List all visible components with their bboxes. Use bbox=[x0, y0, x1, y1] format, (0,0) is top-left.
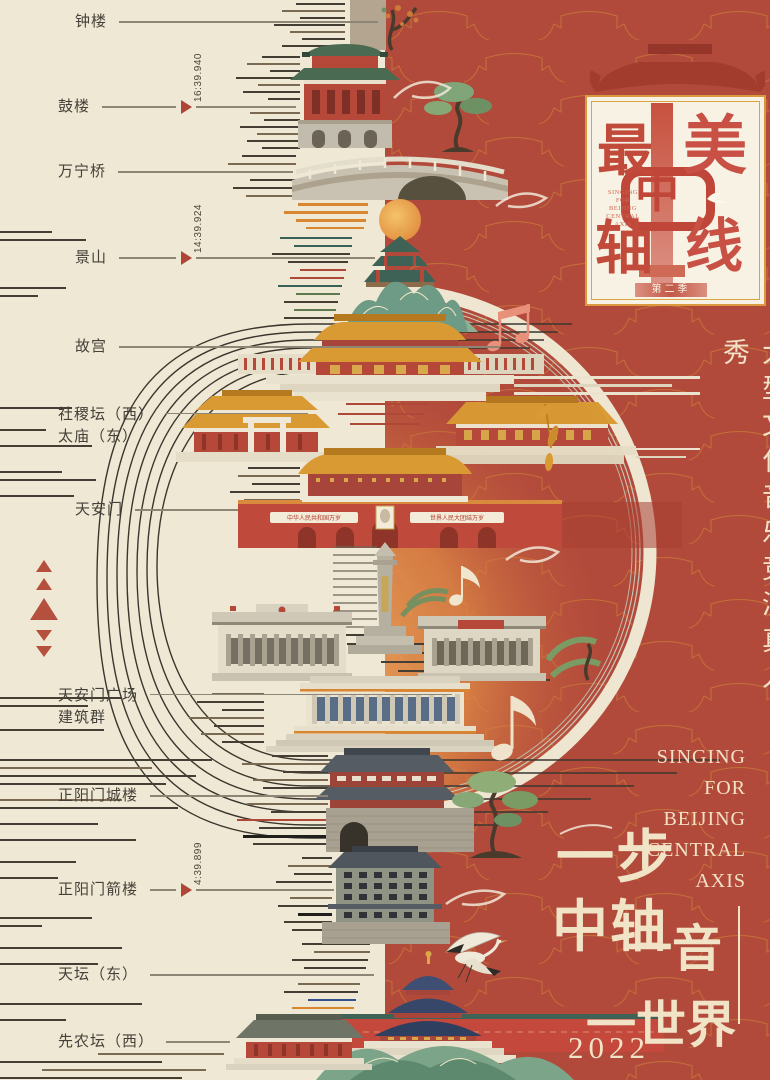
leader-line bbox=[150, 694, 452, 695]
leader-line bbox=[150, 974, 374, 975]
badge-season-banner: 第二季 bbox=[635, 283, 707, 297]
timestamp-label: 16:39.940 bbox=[193, 53, 204, 102]
landmark-label: 正阳门城楼 bbox=[58, 785, 138, 807]
landmark-label: 鼓楼 bbox=[58, 96, 90, 118]
landmark-row: 先农坛（西） bbox=[58, 1033, 230, 1051]
triangle-markers bbox=[30, 560, 58, 657]
landmark-label: 天坛（东） bbox=[58, 964, 138, 986]
tagline-part1: 一步 bbox=[556, 828, 676, 886]
landmark-label: 社稷坛（西）太庙（东） bbox=[58, 404, 154, 448]
leader-line bbox=[119, 346, 500, 347]
timestamp-label: 4:39.899 bbox=[193, 842, 204, 885]
triangle-down-icon bbox=[36, 646, 52, 657]
landmark-label: 景山 bbox=[75, 247, 107, 269]
landmark-row: 天安门广场建筑群 bbox=[58, 685, 452, 729]
landmark-row: 正阳门城楼 bbox=[58, 787, 328, 805]
leader-line bbox=[135, 509, 238, 510]
show-type-vertical-text: 大型文化音乐竞演真人秀 bbox=[714, 338, 770, 718]
landmark-row: 天坛（东） bbox=[58, 966, 374, 984]
landmark-label: 正阳门箭楼 bbox=[58, 879, 138, 901]
landmark-label: 故宫 bbox=[75, 336, 107, 358]
leader-line bbox=[118, 171, 293, 172]
badge-subtitle: SINGINGFOR BEIJINGCENTRAL AXIS bbox=[603, 189, 643, 229]
swallow-icon bbox=[705, 189, 727, 205]
landmark-label: 天安门 bbox=[75, 499, 123, 521]
triangle-up-icon bbox=[36, 560, 52, 572]
landmark-row: 天安门 bbox=[75, 501, 238, 519]
show-title-badge: 最 美 中 轴 线 SINGINGFOR BEIJINGCENTRAL AXIS… bbox=[585, 95, 766, 306]
triangle-up-icon bbox=[30, 598, 58, 620]
badge-roof-icon bbox=[585, 40, 765, 96]
leader-line bbox=[102, 106, 296, 107]
year-label: 2022 bbox=[568, 1030, 650, 1066]
leader-line bbox=[119, 21, 378, 22]
landmark-row: 景山14:39.924 bbox=[75, 249, 375, 267]
leader-line bbox=[166, 413, 308, 414]
landmark-label: 万宁桥 bbox=[58, 161, 106, 183]
english-line: SINGING bbox=[576, 742, 746, 773]
leader-line bbox=[150, 795, 328, 796]
landmark-label: 天安门广场建筑群 bbox=[58, 685, 138, 729]
triangle-down-icon bbox=[36, 630, 52, 641]
title-char-xian: 线 bbox=[685, 217, 743, 275]
landmark-label: 钟楼 bbox=[75, 11, 107, 33]
landmark-row: 社稷坛（西）太庙（东） bbox=[58, 404, 308, 448]
landmark-label: 先农坛（西） bbox=[58, 1031, 154, 1053]
leader-line bbox=[119, 257, 375, 258]
landmark-row: 鼓楼16:39.940 bbox=[58, 98, 296, 116]
tagline-divider-line bbox=[738, 906, 740, 1024]
english-line: FOR bbox=[576, 773, 746, 804]
timestamp-label: 14:39.924 bbox=[193, 204, 204, 253]
landmark-row: 正阳门箭楼4:39.899 bbox=[58, 881, 334, 899]
title-char-mei: 美 bbox=[683, 115, 747, 179]
triangle-up-icon bbox=[36, 578, 52, 590]
landmark-row: 万宁桥 bbox=[58, 163, 293, 181]
landmark-row: 故宫 bbox=[75, 338, 500, 356]
leader-line bbox=[166, 1041, 230, 1042]
tagline-part3: 一音 bbox=[622, 924, 722, 974]
poster: 中华人民共和国万岁 世界人民大团结万岁 bbox=[0, 0, 770, 1080]
landmark-row: 钟楼 bbox=[75, 13, 378, 31]
